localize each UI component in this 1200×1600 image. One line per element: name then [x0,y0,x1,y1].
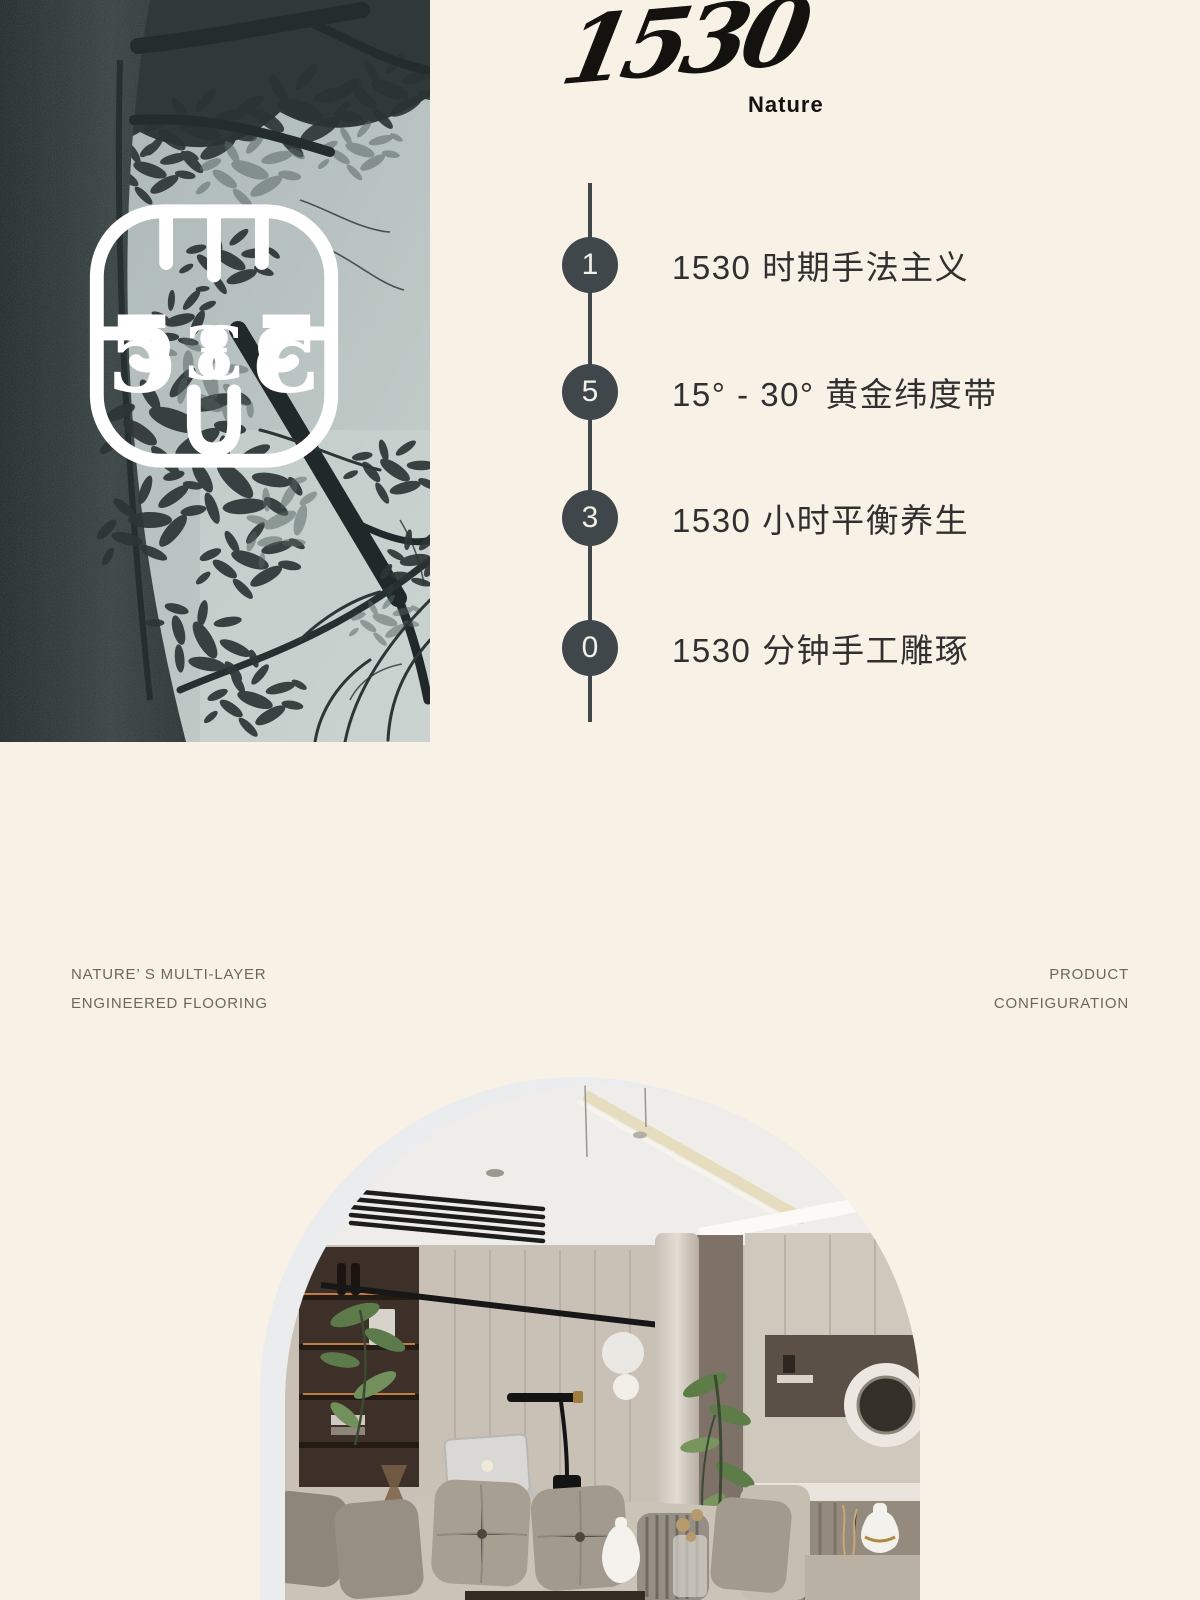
timeline-number-badge: 1 [562,237,618,293]
timeline-item: 3 1530 小时平衡养生 [562,490,1122,546]
ornamental-1530-emblem-icon: 5 5 3 3 [88,202,340,470]
caption-left-line2: ENGINEERED FLOORING [71,989,268,1018]
brand-logo: 1530 Nature [540,6,840,126]
caption-right-line1: PRODUCT [994,960,1129,989]
caption-left: NATURE’ S MULTI-LAYER ENGINEERED FLOORIN… [71,960,268,1018]
caption-right-line2: CONFIGURATION [994,989,1129,1018]
timeline-label: 15° - 30° 黄金纬度带 [672,368,998,416]
timeline-label: 1530 时期手法主义 [672,241,969,289]
tree-photo: 5 5 3 3 [0,0,430,742]
caption-right: PRODUCT CONFIGURATION [994,960,1129,1018]
svg-text:5: 5 [106,292,180,416]
timeline-item: 5 15° - 30° 黄金纬度带 [562,364,1122,420]
page: 5 5 3 3 1530 Nature 1 1530 时期手法主义 5 15° … [0,0,1200,1600]
timeline-item: 0 1530 分钟手工雕琢 [562,620,1122,676]
timeline-label: 1530 分钟手工雕琢 [672,624,969,672]
timeline-number-badge: 5 [562,364,618,420]
svg-text:3: 3 [184,311,235,397]
svg-text:5: 5 [249,292,323,416]
timeline-label: 1530 小时平衡养生 [672,494,969,542]
brand-wordmark: 1530 [554,0,812,102]
timeline-number-badge: 0 [562,620,618,676]
caption-left-line1: NATURE’ S MULTI-LAYER [71,960,268,989]
brand-subtitle: Nature [748,92,824,118]
timeline-item: 1 1530 时期手法主义 [562,237,1122,293]
timeline-number-badge: 3 [562,490,618,546]
